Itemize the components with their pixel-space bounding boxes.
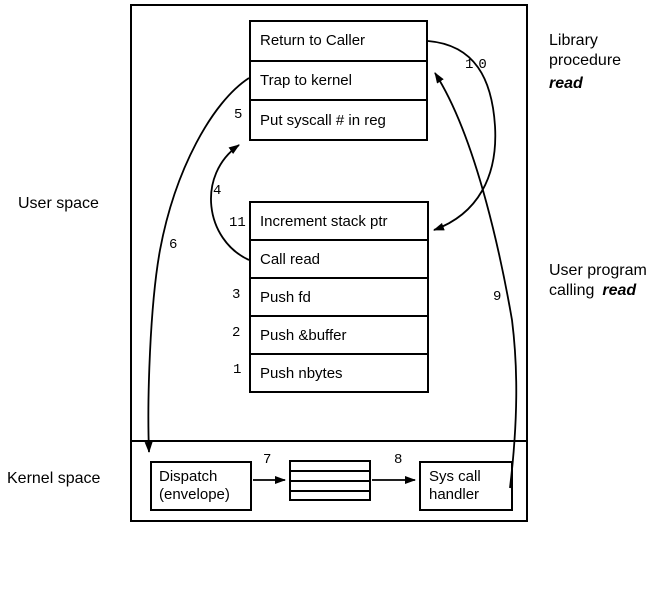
user-row-call-read: Call read [251,239,427,277]
library-row-put-syscall-in-reg: Put syscall # in reg [251,99,426,139]
dispatch-label-line2: (envelope) [159,486,250,504]
user-program-caption-line2: callingread [549,281,647,301]
user-row-push-nbytes: Push nbytes [251,353,427,391]
handler-table-line-2 [291,480,369,482]
library-row-return-to-caller: Return to Caller [251,22,426,60]
user-row-increment-stack-ptr: Increment stack ptr [251,203,427,239]
library-caption-line2: procedure [549,51,621,71]
handler-table-line-3 [291,490,369,492]
user-program-box: Increment stack ptr Call read Push fd Pu… [249,201,429,393]
handler-label-line1: Sys call [429,468,511,486]
handler-label-line2: handler [429,486,511,504]
step-6-label: 6 [169,238,177,252]
library-caption-read: read [549,74,621,94]
user-kernel-divider [130,440,528,442]
handler-table [289,460,371,501]
step-8-label: 8 [394,453,402,467]
user-program-caption-read: read [602,282,636,299]
library-row-trap-to-kernel: Trap to kernel [251,60,426,100]
step-3-label: 3 [232,288,240,302]
library-caption-line1: Library [549,31,621,51]
kernel-space-label: Kernel space [7,469,100,489]
user-row-push-fd: Push fd [251,277,427,315]
user-program-caption: User program callingread [549,261,647,301]
library-procedure-box: Return to Caller Trap to kernel Put sysc… [249,20,428,141]
library-caption: Library procedure read [549,31,621,94]
dispatch-box: Dispatch (envelope) [150,461,252,511]
dispatch-label-line1: Dispatch [159,468,250,486]
step-2-label: 2 [232,326,240,340]
user-space-label: User space [18,194,99,214]
step-9-label: 9 [493,290,501,304]
syscall-diagram: Return to Caller Trap to kernel Put sysc… [0,0,662,595]
user-row-push-buffer: Push &buffer [251,315,427,353]
user-program-caption-calling: calling [549,282,594,299]
syscall-handler-box: Sys call handler [419,461,513,511]
user-program-caption-line1: User program [549,261,647,281]
step-5-label: 5 [234,108,242,122]
step-4-label: 4 [213,184,221,198]
step-10-label: 10 [465,58,492,72]
step-1-label: 1 [233,363,241,377]
step-11-label: 11 [229,216,246,230]
handler-table-line-1 [291,470,369,472]
step-7-label: 7 [263,453,271,467]
